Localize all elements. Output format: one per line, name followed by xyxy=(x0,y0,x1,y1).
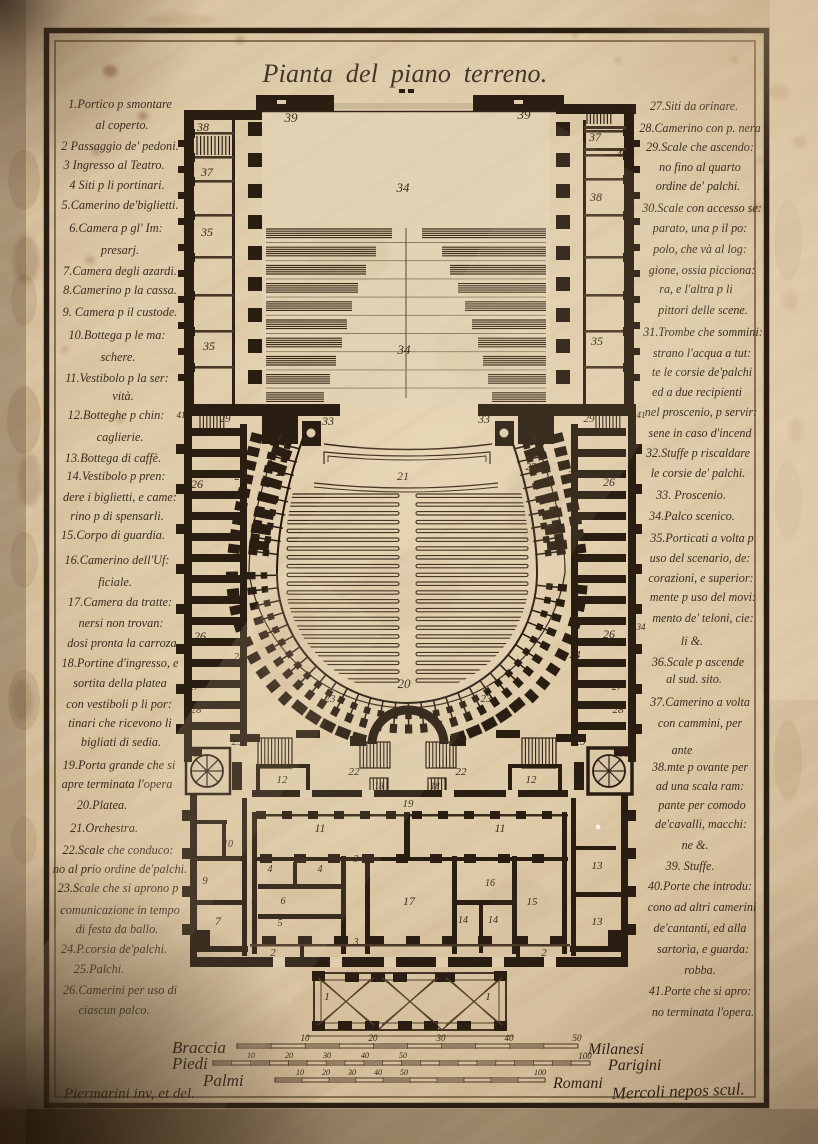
svg-text:schere.: schere. xyxy=(101,350,136,364)
svg-text:12.Botteghe p chin:: 12.Botteghe p chin: xyxy=(68,408,165,422)
svg-text:22: 22 xyxy=(456,766,468,778)
svg-text:17.Camera da tratte:: 17.Camera da tratte: xyxy=(68,595,172,609)
svg-text:12: 12 xyxy=(526,774,538,786)
svg-text:37: 37 xyxy=(200,165,214,179)
svg-text:16.Camerino dell'Uf:: 16.Camerino dell'Uf: xyxy=(64,553,169,567)
svg-text:3: 3 xyxy=(353,937,359,948)
svg-text:con cammini, per: con cammini, per xyxy=(658,716,743,730)
svg-text:17: 17 xyxy=(403,894,416,908)
svg-text:presarj.: presarj. xyxy=(100,243,139,257)
svg-text:Pianta del piano terreno.: Pianta del piano terreno. xyxy=(262,59,548,88)
svg-text:30: 30 xyxy=(436,1033,447,1043)
svg-text:39: 39 xyxy=(517,107,532,122)
svg-text:1: 1 xyxy=(485,991,491,1003)
svg-text:10.Bottega p le ma:: 10.Bottega p le ma: xyxy=(69,328,166,342)
svg-text:39. Stuffe.: 39. Stuffe. xyxy=(665,859,715,873)
svg-text:34.Palco scenico.: 34.Palco scenico. xyxy=(648,509,735,523)
svg-text:sortita della platea: sortita della platea xyxy=(73,676,167,690)
svg-text:27: 27 xyxy=(612,682,623,693)
svg-text:sene in caso d'incend: sene in caso d'incend xyxy=(648,426,752,440)
svg-text:40: 40 xyxy=(361,1051,369,1060)
svg-text:16: 16 xyxy=(485,878,495,889)
svg-text:30: 30 xyxy=(618,749,629,760)
svg-text:15.Corpo di guardia.: 15.Corpo di guardia. xyxy=(61,528,165,542)
svg-text:mente p uso del movi:: mente p uso del movi: xyxy=(650,590,756,604)
svg-text:35: 35 xyxy=(202,339,215,353)
svg-text:38.mte p ovante per: 38.mte p ovante per xyxy=(651,760,748,774)
svg-text:28: 28 xyxy=(613,704,625,716)
svg-text:rino p di spensarli.: rino p di spensarli. xyxy=(70,509,164,523)
svg-text:vità.: vità. xyxy=(112,389,134,403)
svg-text:11: 11 xyxy=(494,821,505,835)
svg-text:14: 14 xyxy=(458,915,468,926)
svg-text:30: 30 xyxy=(347,1068,356,1077)
svg-text:7.Camera degli azardi.: 7.Camera degli azardi. xyxy=(63,264,177,278)
svg-text:34: 34 xyxy=(397,342,412,357)
svg-text:13: 13 xyxy=(592,860,604,872)
svg-text:9. Camera p il custode.: 9. Camera p il custode. xyxy=(63,305,178,319)
svg-text:37.Camerino a volta: 37.Camerino a volta xyxy=(649,695,750,709)
svg-text:nersi non trovan:: nersi non trovan: xyxy=(79,616,164,630)
svg-text:33: 33 xyxy=(321,414,334,428)
svg-text:14: 14 xyxy=(488,915,498,926)
svg-text:40: 40 xyxy=(374,1068,382,1077)
svg-text:36.Scale p ascende: 36.Scale p ascende xyxy=(651,655,745,669)
svg-text:26: 26 xyxy=(194,629,206,643)
svg-text:li &.: li &. xyxy=(681,634,703,648)
svg-text:50: 50 xyxy=(399,1051,407,1060)
svg-text:29: 29 xyxy=(220,413,232,425)
svg-text:41: 41 xyxy=(177,410,186,420)
svg-text:24: 24 xyxy=(235,471,247,483)
svg-text:dere i biglietti, e came:: dere i biglietti, e came: xyxy=(63,490,177,504)
svg-text:pante per comodo: pante per comodo xyxy=(657,798,745,812)
svg-text:de'cavalli, macchi:: de'cavalli, macchi: xyxy=(655,817,747,831)
svg-text:26: 26 xyxy=(191,477,203,491)
svg-text:18.Portine d'ingresso, e: 18.Portine d'ingresso, e xyxy=(62,656,179,670)
svg-text:14.Vestibolo p pren:: 14.Vestibolo p pren: xyxy=(67,469,166,483)
svg-text:35: 35 xyxy=(200,225,213,239)
svg-text:32.Stuffe p riscaldare: 32.Stuffe p riscaldare xyxy=(645,446,751,460)
svg-text:ne &.: ne &. xyxy=(682,838,709,852)
svg-text:26: 26 xyxy=(603,627,615,641)
svg-text:25: 25 xyxy=(276,467,288,479)
svg-text:20.Platea.: 20.Platea. xyxy=(77,798,128,812)
svg-text:33. Proscenio.: 33. Proscenio. xyxy=(655,488,726,502)
svg-text:13.Bottega di caffè.: 13.Bottega di caffè. xyxy=(65,451,161,465)
svg-text:35.Porticati a volta p: 35.Porticati a volta p xyxy=(649,531,753,545)
svg-text:6.Camera p gl' Im:: 6.Camera p gl' Im: xyxy=(69,221,162,235)
svg-text:al sud. sito.: al sud. sito. xyxy=(666,672,722,686)
svg-text:ante: ante xyxy=(672,743,693,757)
svg-text:34: 34 xyxy=(396,180,411,195)
svg-text:5.Camerino de'biglietti.: 5.Camerino de'biglietti. xyxy=(61,198,178,212)
svg-text:mento de' teloni, cie:: mento de' teloni, cie: xyxy=(652,611,753,625)
svg-text:29: 29 xyxy=(575,736,587,748)
svg-text:ad una scala ram:: ad una scala ram: xyxy=(656,779,744,793)
svg-text:ficiale.: ficiale. xyxy=(98,575,132,589)
svg-text:caglierie.: caglierie. xyxy=(97,430,144,444)
svg-text:11.Vestibolo p la ser:: 11.Vestibolo p la ser: xyxy=(65,371,169,385)
svg-text:24: 24 xyxy=(570,649,582,661)
svg-text:34: 34 xyxy=(636,622,647,632)
svg-text:50: 50 xyxy=(400,1068,408,1077)
svg-text:39: 39 xyxy=(284,110,299,125)
svg-text:corazioni, e superior:: corazioni, e superior: xyxy=(648,571,753,585)
svg-text:bigliati di sedia.: bigliati di sedia. xyxy=(81,735,161,749)
svg-text:20: 20 xyxy=(369,1033,379,1043)
svg-text:18: 18 xyxy=(431,781,441,791)
svg-text:uso del scenario, de:: uso del scenario, de: xyxy=(650,551,751,565)
svg-text:dosi pronta la carroza: dosi pronta la carroza xyxy=(67,636,176,650)
svg-text:27: 27 xyxy=(189,682,200,693)
svg-text:con vestiboli p li por:: con vestiboli p li por: xyxy=(66,697,172,711)
svg-text:40: 40 xyxy=(505,1033,515,1043)
svg-text:8.Camerino p la cassa.: 8.Camerino p la cassa. xyxy=(63,283,177,297)
svg-text:le corsie de' palchi.: le corsie de' palchi. xyxy=(651,466,746,480)
svg-text:tinari che ricevono li: tinari che ricevono li xyxy=(68,716,172,730)
